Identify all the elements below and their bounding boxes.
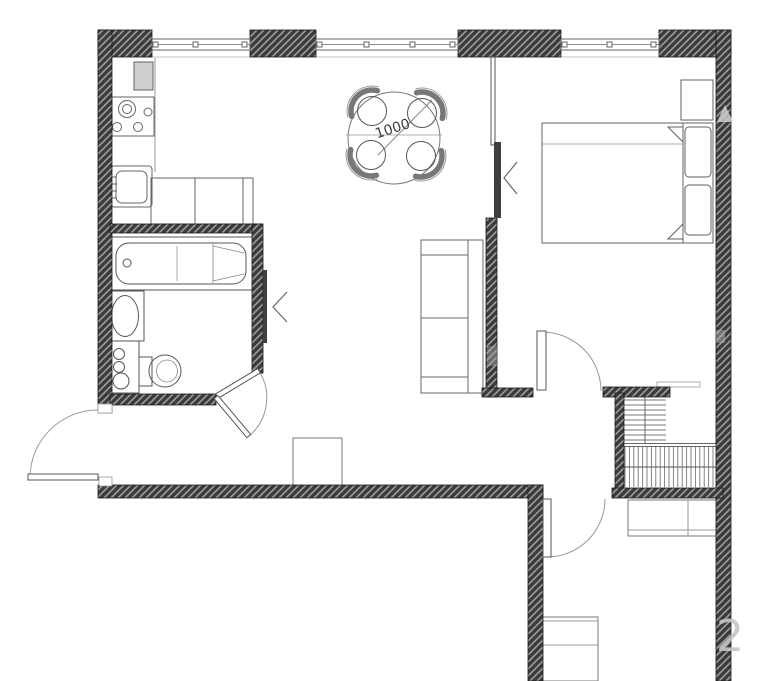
refrigerator [134, 62, 153, 90]
door-leaf [543, 499, 551, 557]
wall-living-bottom [98, 485, 543, 498]
wall-bathroom-top [110, 224, 262, 233]
watermark-smudge [487, 346, 497, 366]
floor-plan-canvas: 1000 [0, 0, 761, 681]
window-kitchen [152, 39, 250, 50]
window-living [316, 39, 458, 50]
wall-bedroom-bottom-stub [482, 388, 533, 397]
window-bedroom [561, 39, 659, 50]
wall-top-pier [458, 30, 561, 57]
wall-wardrobe-bottom [612, 488, 723, 498]
wall-bedroom-partition-thin [491, 57, 495, 145]
wall-top-pier [250, 30, 316, 57]
wall-end-notch [99, 477, 112, 486]
door-leaf [537, 331, 546, 390]
floor-plan-drawing: 1000 [0, 0, 761, 681]
wall-bedroom-bottom [603, 387, 670, 397]
bedroom-sliding-panel [494, 142, 501, 218]
watermark-digit: 2 [716, 611, 744, 662]
wall-bathroom-bottom [110, 394, 216, 405]
wall-wardrobe-left [615, 393, 624, 492]
wall-bedroom-partition [486, 218, 497, 397]
wall-left-exterior [98, 30, 112, 413]
wall-right-exterior [716, 30, 731, 681]
wall-end-cap [98, 404, 112, 413]
watermark-smudge [716, 330, 725, 343]
bathroom-sliding-panel [263, 270, 267, 343]
door-leaf [28, 474, 98, 480]
wall-bathroom-right [252, 224, 263, 373]
wall-corridor-west [528, 485, 543, 681]
windows [152, 39, 659, 50]
